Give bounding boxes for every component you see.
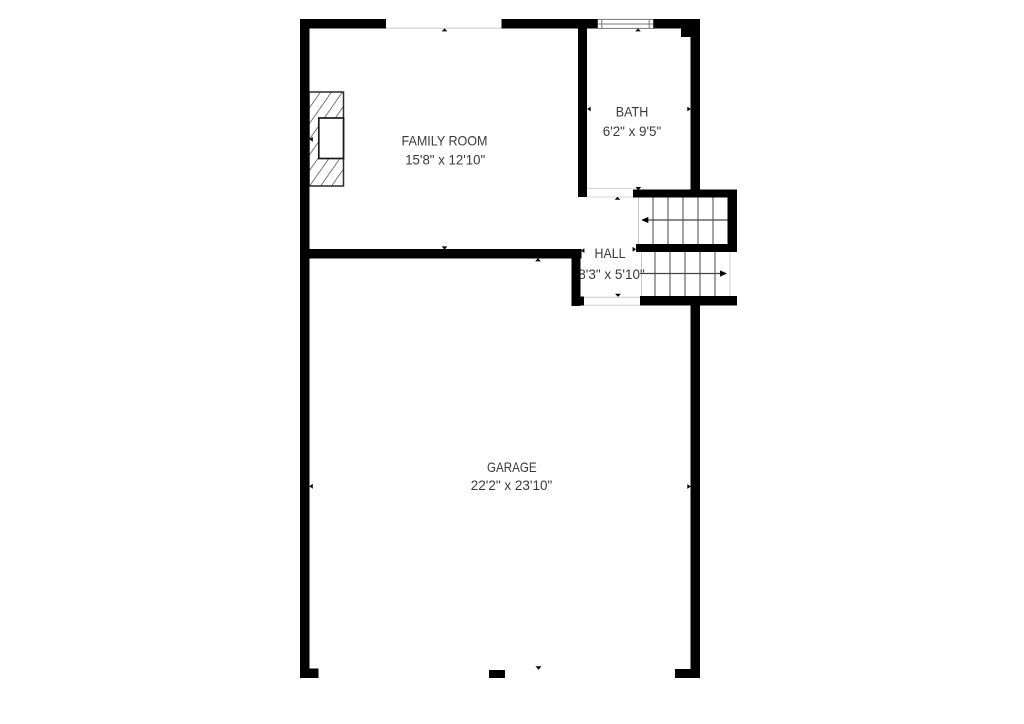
svg-text:22'2" x 23'10": 22'2" x 23'10" <box>471 478 553 493</box>
svg-text:15'8" x 12'10": 15'8" x 12'10" <box>405 153 485 168</box>
svg-text:GARAGE: GARAGE <box>487 459 537 475</box>
svg-text:8'3" x 5'10": 8'3" x 5'10" <box>578 267 645 282</box>
svg-text:FAMILY ROOM: FAMILY ROOM <box>402 133 488 149</box>
svg-text:BATH: BATH <box>616 104 649 120</box>
svg-text:6'2" x 9'5": 6'2" x 9'5" <box>603 124 662 139</box>
svg-text:HALL: HALL <box>595 245 626 261</box>
